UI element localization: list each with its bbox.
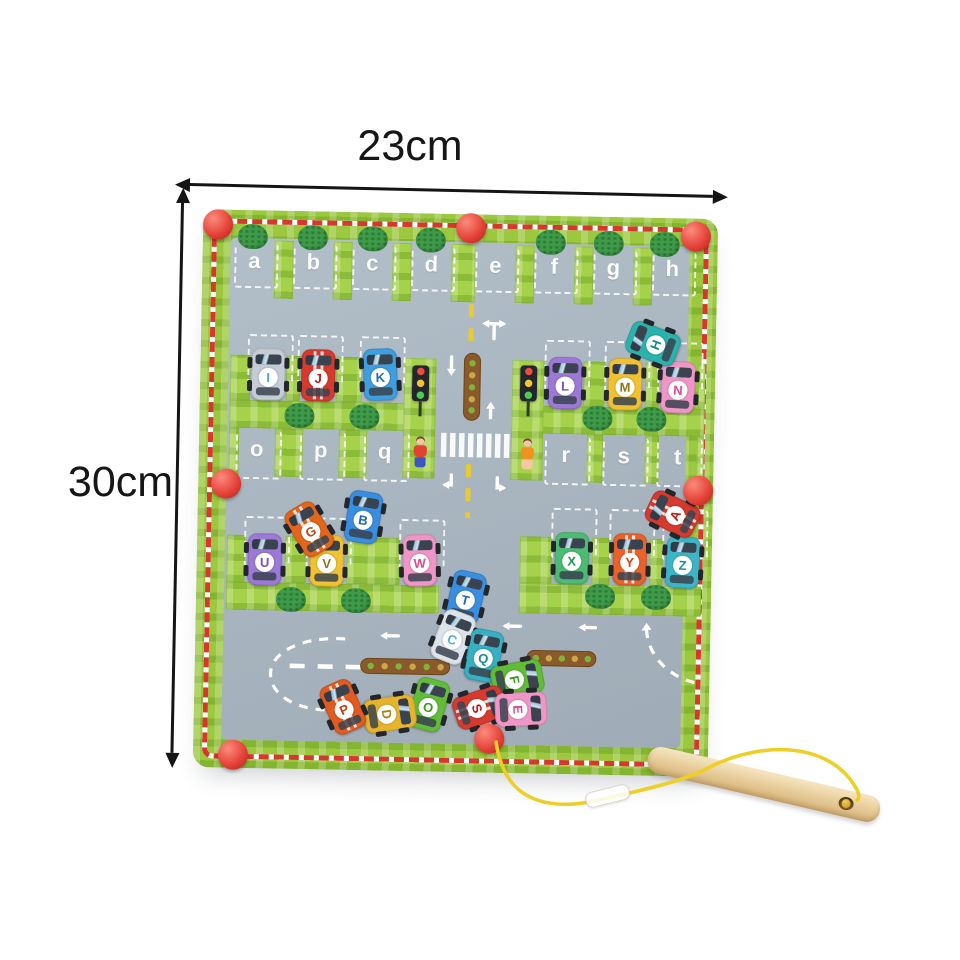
car-letter-M: M [615,378,634,397]
car-rear-window [617,572,641,580]
car-rear-window [408,573,432,581]
width-dimension-arrow [190,183,713,198]
car-rear-window [670,575,694,584]
arrow-up-head [176,188,190,203]
car-J: J [301,349,336,402]
car-W: W [402,534,437,587]
car-windshield [559,538,585,548]
product-photo: 23cm 30cm [0,0,960,960]
car-rear-window [665,400,689,409]
car-letter-U: U [255,553,274,572]
kid-head [416,436,425,445]
traffic-light-pole [418,401,421,416]
car-rear-window [314,573,338,581]
slot-letter-e: e [480,252,510,279]
slot-letter-h: h [657,256,687,283]
car-windshield [419,682,447,698]
car-windshield [473,633,500,648]
slot-letter-o: o [242,436,272,463]
car-letter-W: W [410,554,429,573]
kid-legs [414,457,425,467]
slot-letter-f: f [539,254,569,281]
car-rear-window [306,388,330,396]
slot-letter-c: c [357,250,387,277]
tree-bush [582,405,612,431]
car-windshield [456,575,484,591]
car-windshield [525,663,540,690]
car-windshield [398,698,412,725]
slot-letter-q: q [370,438,400,465]
car-windshield [305,355,331,365]
car-Z: Z [664,535,701,589]
car-windshield [670,542,697,553]
car-letter-J: J [308,369,327,388]
tree-bush [341,588,371,614]
tree-bush [284,403,314,429]
car-letter-V: V [317,554,336,573]
tree-bush [238,224,268,250]
car-windshield [352,495,379,509]
car-letter-L: L [555,376,574,395]
car-U: U [247,533,282,586]
car-rear-window [559,571,583,579]
girl-figure [519,438,535,469]
slot-letter-t: t [662,444,692,471]
board-content: abcdefghopqrstIJKLMNUVWXYZHAGBTCQFSEODP [193,209,719,777]
car-letter-K: K [371,368,391,388]
boy-figure [412,436,428,467]
traffic-light-icon [412,365,430,401]
tree-bush [650,232,680,258]
traffic-light-pole [526,401,529,416]
car-letter-X: X [562,552,581,571]
tree-bush [641,585,671,611]
car-letter-E: E [508,699,528,719]
car-windshield [530,695,541,721]
car-rear-window [553,396,577,404]
height-dimension-label: 30cm [58,458,183,507]
car-Y: Y [612,533,647,586]
car-windshield [406,540,432,550]
arrow-right-head [713,189,728,203]
width-dimension-label: 23cm [350,122,470,171]
car-windshield [552,363,578,373]
car-N: N [660,360,697,414]
car-letter-F: F [503,669,525,691]
car-K: K [362,348,398,401]
string-sleeve [584,783,632,809]
car-windshield [367,354,393,365]
maze-wall [519,536,552,584]
car-rear-window [252,572,276,580]
car-windshield [252,539,278,549]
tree-bush [536,229,566,255]
car-I: I [251,348,286,401]
tree-bush [349,404,379,430]
slot-letter-d: d [416,251,446,278]
slot-letter-g: g [598,255,628,282]
car-windshield [666,367,693,378]
kid-head [523,438,532,447]
crosswalk [441,433,510,458]
car-letter-I: I [259,368,278,387]
tree-bush [358,226,388,252]
slot-letter-b: b [298,249,328,276]
slot-letter-a: a [239,248,269,275]
maze-board: abcdefghopqrstIJKLMNUVWXYZHAGBTCQFSEODP [193,209,719,777]
car-E: E [494,691,548,728]
car-X: X [554,532,589,585]
slot-letter-p: p [306,437,336,464]
tree-bush [298,225,328,251]
slot-letter-s: s [608,443,638,470]
slot-letter-r: r [551,442,581,469]
car-rear-window [348,528,373,540]
car-windshield [617,539,643,549]
kid-legs [521,459,532,469]
car-letter-B: B [352,509,374,531]
tree-bush [416,227,446,253]
kid-torso [414,445,427,457]
car-letter-Y: Y [620,553,639,572]
traffic-light-icon [520,365,538,401]
kid-torso [521,447,534,459]
car-windshield [612,364,638,374]
car-rear-window [613,397,637,405]
car-M: M [608,358,643,411]
maze-wall [346,537,400,585]
car-letter-D: D [376,703,398,725]
car-rear-window [369,387,393,396]
arrow-down-head [165,753,179,768]
car-L: L [548,357,583,410]
car-windshield [630,324,649,352]
car-letter-N: N [668,380,688,400]
maze-wall [226,535,245,582]
tree-bush [585,584,615,610]
tree-bush [594,231,624,257]
car-windshield [255,354,281,364]
car-letter-Z: Z [673,555,693,575]
car-rear-window [256,387,280,395]
tree-bush [276,587,306,613]
car-rear-window [499,698,508,722]
magnetic-pen [645,744,883,824]
